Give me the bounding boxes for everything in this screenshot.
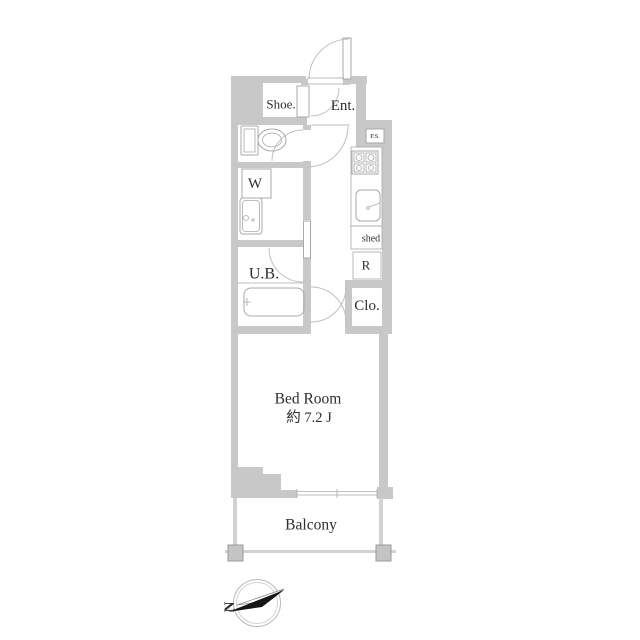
stove-burner-4 [369,166,374,171]
wall-above-closet [345,280,392,288]
balcony-railing [225,550,396,553]
wall-mid-upper [303,161,311,220]
sink-faucet [369,203,380,207]
wall-kitchen-right [382,147,392,333]
wall-bottom-right-block [377,487,393,499]
balcony-post-right [376,545,391,561]
balcony-side-left [233,498,237,546]
wall-top-left-block [231,76,263,117]
floor-plan-page: N Shoe. Ent. P.S. W U.B. shed R Clo. Bed… [0,0,640,640]
shoe-cabinet [297,86,309,117]
balcony-label: Balcony [285,517,337,534]
bedroom-door-arc-1 [311,287,346,322]
ent-label: Ent. [331,98,356,114]
entrance-door-leaf [343,38,351,79]
toilet-bowl-inner [263,133,282,147]
bathtub-icon [238,283,304,316]
wall-bedroom-top-left [231,326,311,334]
toilet-tank [241,126,258,155]
basin-outer [240,198,262,234]
shed-label: shed [362,234,380,245]
wall-below-toilet [231,162,303,168]
ps-label: P.S. [370,133,380,140]
ub-label: U.B. [249,266,279,283]
compass-icon: N [222,580,284,627]
hallway-door-arc [307,126,348,167]
stove-outline [352,151,378,174]
balcony-side-right [379,498,383,546]
bathtub [244,288,304,316]
wall-left [231,117,238,498]
wall-top [263,76,306,83]
toilet-door-arc [272,130,303,161]
bedroom-door-arc-2 [311,287,346,322]
washroom-door-leaf [304,221,311,258]
fridge-label: R [362,258,371,273]
sink-icon [356,190,380,221]
shoe-label: Shoe. [266,97,295,112]
door-jamb-left [301,79,308,85]
stove-burner-1 [356,155,362,161]
wall-below-ent [231,117,307,125]
closet-label: Clo. [354,298,379,314]
wall-bedroom-right [379,333,388,490]
door-jamb-right [343,79,350,85]
balcony-post-left [228,545,243,561]
compass-north-label: N [222,601,238,612]
washbasin-icon [240,198,262,234]
wall-ent-right [356,76,366,122]
bedroom-size-label: 約 7.2 J [286,409,332,426]
bedroom-label: Bed Room [275,391,342,408]
floor-plan: N Shoe. Ent. P.S. W U.B. shed R Clo. Bed… [0,0,640,640]
stove-burner-3 [357,166,362,171]
wall-bedroom-top-right [345,326,392,334]
wall-mid-lower [303,258,311,326]
sink-faucet-tip [367,207,370,210]
stove-burner-2 [368,155,374,161]
wall-step-2 [263,474,281,498]
stove-icon [352,151,378,174]
basin-faucet [244,216,249,221]
sink-basin [356,190,380,221]
basin-drain [252,219,254,221]
wall-mid-stub [303,125,311,130]
wall-below-washer [231,240,303,247]
washer-label: W [248,176,263,192]
bedroom-window [297,489,377,498]
toilet-tank-inner [244,129,255,152]
wall-step-1 [238,467,263,498]
